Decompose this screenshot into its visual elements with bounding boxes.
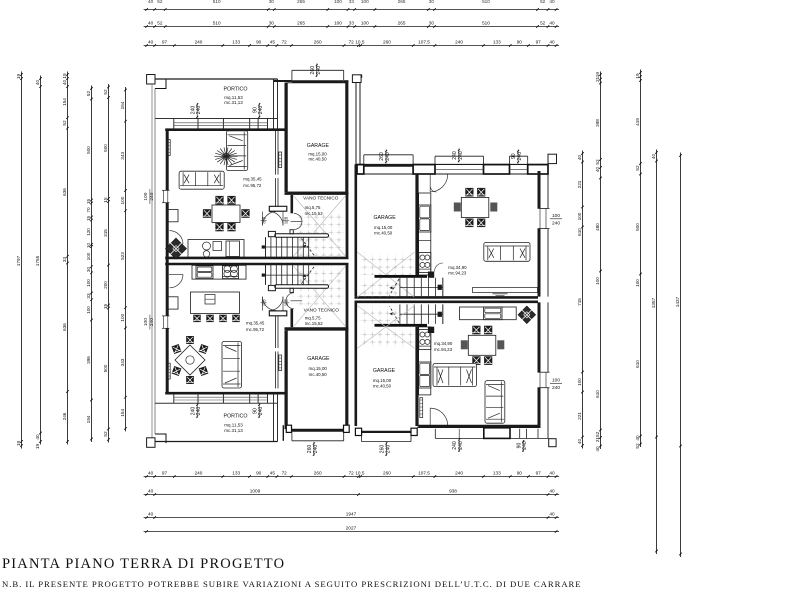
svg-text:97: 97 [536,40,542,45]
svg-text:2119: 2119 [595,72,600,82]
svg-text:40: 40 [595,167,600,173]
svg-text:1009: 1009 [250,489,261,494]
svg-text:52: 52 [103,431,108,437]
svg-text:mc.95,72: mc.95,72 [243,183,262,188]
svg-text:100: 100 [361,21,369,26]
svg-text:398: 398 [595,119,600,127]
svg-text:mc.15,52: mc.15,52 [305,211,324,216]
svg-text:90: 90 [256,471,262,476]
svg-text:154: 154 [120,101,125,109]
svg-text:72: 72 [282,40,288,45]
svg-text:40: 40 [577,155,582,161]
svg-text:133: 133 [232,471,240,476]
svg-text:72: 72 [349,471,355,476]
svg-text:30: 30 [269,21,275,26]
svg-text:1797: 1797 [16,255,21,266]
svg-text:52: 52 [595,159,600,165]
svg-text:480: 480 [595,223,600,231]
svg-text:19: 19 [35,444,40,450]
svg-text:500: 500 [103,364,108,372]
svg-text:100: 100 [552,378,560,384]
svg-text:154: 154 [120,409,125,417]
svg-text:GARAGE: GARAGE [373,215,396,221]
svg-text:100: 100 [595,277,600,285]
svg-text:N.B. IL PRESENTE PROGETTO: N.B. IL PRESENTE PROGETTO POTREBBE SUBIR… [2,579,582,589]
svg-text:240: 240 [455,471,463,476]
svg-text:10: 10 [86,243,91,249]
svg-text:20: 20 [262,303,266,307]
svg-text:19: 19 [16,74,21,80]
svg-text:97: 97 [536,471,542,476]
svg-text:40: 40 [549,512,555,517]
svg-text:52: 52 [62,120,67,126]
svg-text:19: 19 [62,73,67,79]
svg-text:19: 19 [16,441,21,447]
svg-text:343: 343 [120,152,125,160]
svg-text:33: 33 [86,293,91,299]
svg-text:40: 40 [148,21,154,26]
svg-text:15: 15 [103,197,108,203]
svg-text:40: 40 [651,154,656,160]
svg-text:GARAGE: GARAGE [307,356,330,362]
svg-text:636: 636 [62,188,67,196]
svg-text:30: 30 [429,21,435,26]
svg-text:1947: 1947 [346,512,357,517]
svg-text:40: 40 [148,40,154,45]
svg-text:40: 40 [148,512,154,517]
svg-text:100: 100 [334,21,342,26]
svg-text:PORTICO: PORTICO [223,414,247,420]
svg-text:2027: 2027 [346,526,357,531]
svg-text:VANO TECNICO: VANO TECNICO [303,195,339,200]
svg-text:100: 100 [86,279,91,287]
svg-text:10.5: 10.5 [355,471,365,476]
svg-text:40: 40 [549,471,555,476]
svg-text:30: 30 [429,0,435,4]
svg-text:246: 246 [62,412,67,420]
svg-text:40: 40 [148,0,154,4]
svg-text:mq.34,90: mq.34,90 [434,341,453,346]
svg-text:240: 240 [552,385,560,391]
svg-text:100: 100 [552,213,560,219]
svg-text:500: 500 [103,144,108,152]
svg-text:15: 15 [86,216,91,222]
svg-text:20: 20 [284,303,288,307]
svg-text:610: 610 [595,390,600,398]
svg-text:19: 19 [635,73,640,79]
svg-text:240: 240 [455,40,463,45]
svg-text:mc.40,50: mc.40,50 [308,157,327,162]
svg-text:52: 52 [540,21,546,26]
svg-text:100: 100 [143,318,149,326]
svg-text:45: 45 [270,40,276,45]
svg-text:mq.34,90: mq.34,90 [448,265,467,270]
svg-text:72: 72 [282,471,288,476]
svg-text:mq.15,00: mq.15,00 [309,366,328,371]
svg-text:15: 15 [86,199,91,205]
svg-text:120: 120 [86,228,91,236]
svg-text:mc.31,13: mc.31,13 [224,428,243,433]
svg-text:33: 33 [349,21,355,26]
svg-text:40: 40 [35,434,40,440]
svg-text:240: 240 [552,221,560,227]
svg-text:500: 500 [86,146,91,154]
svg-text:240: 240 [195,471,203,476]
svg-text:mq.15,00: mq.15,00 [373,378,392,383]
svg-text:20: 20 [262,220,266,224]
svg-text:52: 52 [86,91,91,97]
svg-text:mq.5,75: mq.5,75 [305,316,321,321]
svg-text:70: 70 [86,207,91,213]
svg-text:510: 510 [213,0,221,4]
svg-text:260: 260 [314,471,322,476]
svg-text:194: 194 [86,415,91,423]
svg-text:52: 52 [103,89,108,95]
svg-text:154: 154 [62,98,67,106]
svg-text:52: 52 [157,0,163,4]
svg-text:mq.35,45: mq.35,45 [246,321,265,326]
svg-text:mc.94,23: mc.94,23 [448,271,467,276]
svg-text:510: 510 [213,21,221,26]
svg-text:107.5: 107.5 [418,40,430,45]
svg-text:265: 265 [398,21,406,26]
svg-text:200: 200 [103,281,108,289]
svg-text:33: 33 [62,257,67,263]
svg-text:133: 133 [232,40,240,45]
svg-text:510: 510 [482,0,490,4]
svg-text:2152: 2152 [595,431,600,442]
svg-text:315: 315 [103,229,108,237]
svg-text:260: 260 [314,40,322,45]
svg-text:240: 240 [195,40,203,45]
svg-text:1357: 1357 [651,297,656,308]
svg-text:90: 90 [256,40,262,45]
svg-text:52: 52 [157,21,163,26]
svg-text:90: 90 [517,471,523,476]
svg-text:100: 100 [120,313,125,321]
svg-text:221: 221 [577,412,582,420]
svg-text:265: 265 [398,0,406,4]
svg-text:100: 100 [577,212,582,220]
svg-text:40: 40 [148,489,154,494]
svg-text:mc.95,72: mc.95,72 [246,327,265,332]
svg-text:30: 30 [86,267,91,273]
svg-text:mc.40,50: mc.40,50 [309,372,328,377]
svg-text:30: 30 [269,0,275,4]
svg-text:97: 97 [162,40,168,45]
svg-text:40: 40 [577,439,582,445]
svg-text:mc.40,50: mc.40,50 [374,231,393,236]
svg-text:100: 100 [334,0,342,4]
svg-text:72: 72 [349,40,355,45]
svg-text:52: 52 [635,443,640,449]
svg-text:mq.15,00: mq.15,00 [374,225,393,230]
svg-text:33: 33 [349,0,355,4]
svg-text:PIANTA PIANO TERRA DI PROG: PIANTA PIANO TERRA DI PROGETTO [2,556,285,572]
svg-text:396: 396 [86,356,91,364]
svg-text:715: 715 [577,298,582,306]
svg-text:938: 938 [449,489,457,494]
svg-text:500: 500 [635,223,640,231]
svg-text:100: 100 [86,306,91,314]
svg-text:343: 343 [120,358,125,366]
svg-text:107.5: 107.5 [418,471,430,476]
svg-text:VANO TECNICO: VANO TECNICO [304,307,340,312]
svg-text:20: 20 [284,220,288,224]
svg-text:mq.5,75: mq.5,75 [305,205,321,210]
svg-text:90: 90 [517,40,523,45]
svg-text:610: 610 [635,360,640,368]
svg-text:1437: 1437 [675,296,680,307]
svg-text:mc.31,13: mc.31,13 [224,100,243,105]
svg-text:610: 610 [577,228,582,236]
svg-text:40: 40 [549,21,555,26]
svg-text:PORTICO: PORTICO [223,87,247,93]
svg-text:40: 40 [549,489,555,494]
svg-text:523: 523 [120,252,125,260]
svg-text:45: 45 [270,471,276,476]
svg-text:40: 40 [549,40,555,45]
svg-text:636: 636 [62,323,67,331]
svg-text:100: 100 [86,252,91,260]
svg-text:419: 419 [635,118,640,126]
svg-text:100: 100 [577,378,582,386]
svg-text:265: 265 [297,0,305,4]
svg-text:260: 260 [383,40,391,45]
svg-text:15: 15 [103,304,108,310]
svg-text:100: 100 [635,279,640,287]
svg-text:97: 97 [162,471,168,476]
svg-text:mc.15,52: mc.15,52 [305,321,324,326]
svg-text:40: 40 [595,446,600,452]
svg-text:133: 133 [493,40,501,45]
svg-text:265: 265 [297,21,305,26]
svg-text:52: 52 [635,165,640,171]
svg-text:40: 40 [148,471,154,476]
svg-text:GARAGE: GARAGE [373,368,396,374]
svg-text:100: 100 [361,0,369,4]
svg-text:40: 40 [549,0,555,4]
svg-text:52: 52 [540,0,546,4]
svg-text:mc.40,50: mc.40,50 [373,383,392,388]
svg-text:221: 221 [577,180,582,188]
svg-text:510: 510 [482,21,490,26]
svg-text:40: 40 [62,80,67,86]
svg-text:40: 40 [35,80,40,86]
svg-text:100: 100 [143,192,149,200]
svg-text:mq.35,45: mq.35,45 [243,177,262,182]
svg-text:10.5: 10.5 [355,40,365,45]
svg-text:GARAGE: GARAGE [307,143,330,149]
svg-text:mq.11,53: mq.11,53 [224,423,243,428]
svg-text:mc.94,23: mc.94,23 [434,347,453,352]
svg-text:260: 260 [383,471,391,476]
svg-text:133: 133 [493,471,501,476]
svg-text:1755: 1755 [35,255,40,266]
svg-text:100: 100 [120,196,125,204]
svg-text:40: 40 [635,435,640,441]
